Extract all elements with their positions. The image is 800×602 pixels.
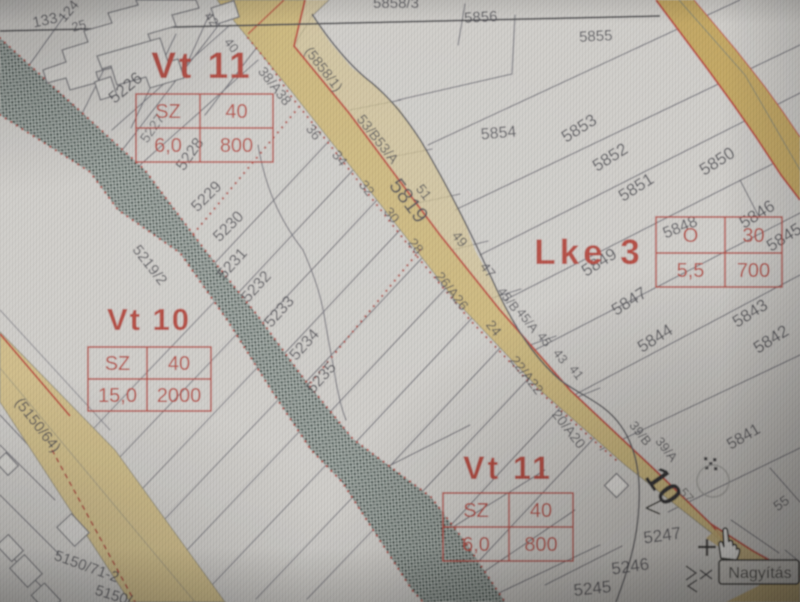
svg-text:40: 40 — [530, 500, 552, 522]
svg-text:5854: 5854 — [480, 123, 517, 143]
svg-text:30: 30 — [742, 225, 764, 247]
svg-text:Vt 10: Vt 10 — [107, 302, 191, 337]
svg-text:800: 800 — [220, 135, 253, 157]
svg-text:6,0: 6,0 — [462, 534, 490, 556]
svg-text:Lke 3: Lke 3 — [534, 233, 644, 272]
svg-text:40: 40 — [168, 353, 190, 375]
svg-text:6,0: 6,0 — [154, 135, 182, 157]
svg-text:Vt 11: Vt 11 — [463, 450, 553, 486]
svg-text:40: 40 — [225, 101, 247, 123]
svg-text:Nagyítás: Nagyítás — [728, 565, 791, 582]
svg-text:5,5: 5,5 — [677, 260, 705, 282]
svg-text:700: 700 — [737, 260, 770, 282]
svg-text:5856: 5856 — [464, 8, 498, 27]
svg-text:5245: 5245 — [573, 577, 613, 600]
svg-text:Vt 11: Vt 11 — [151, 45, 252, 86]
svg-text:5855: 5855 — [579, 27, 613, 46]
svg-text:SZ: SZ — [155, 101, 181, 123]
svg-text:15,0: 15,0 — [98, 385, 137, 407]
svg-text:SZ: SZ — [105, 353, 131, 375]
svg-text:O: O — [683, 225, 699, 247]
svg-text:2000: 2000 — [157, 385, 202, 407]
svg-text:5858/3: 5858/3 — [373, 0, 419, 12]
svg-text:SZ: SZ — [463, 500, 489, 522]
svg-text:800: 800 — [524, 534, 557, 556]
